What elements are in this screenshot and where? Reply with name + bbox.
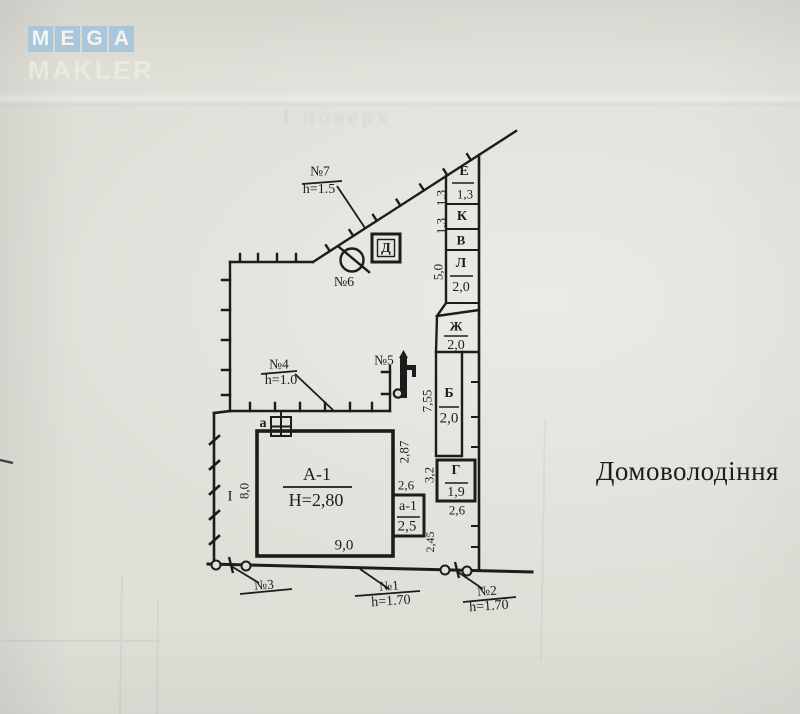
annex-width: 2,6 [398, 479, 414, 492]
dim-b-length: 7,55 [421, 390, 434, 413]
annex-label: а-1 [399, 500, 417, 514]
main-house-height: Н=2,80 [289, 491, 344, 509]
mark-n4-height: h=1.0 [265, 374, 297, 388]
annex-dim: 2,5 [398, 520, 417, 535]
mark-n6-label: №6 [334, 276, 354, 290]
room-zh-dim: 2,0 [447, 339, 465, 353]
property-title: Домоволодіння [596, 456, 779, 487]
mark-n7-label: №7 [310, 164, 330, 178]
room-v-label: В [457, 234, 466, 247]
room-l-label: Л [456, 257, 466, 271]
dim-e-k: 1,3 [435, 190, 448, 206]
room-k-label: К [457, 210, 467, 224]
room-b-label: Б [444, 387, 453, 401]
dim-house-left: 8,0 [238, 483, 251, 499]
room-g-width: 2,6 [449, 504, 465, 517]
dim-house-right: 2,87 [398, 441, 411, 464]
mark-n2-label: №2 [477, 584, 498, 599]
section-label: I [228, 490, 233, 505]
mark-n1-label: №1 [379, 579, 400, 594]
mark-n1-height: h=1.70 [371, 594, 411, 611]
dim-k-v: 1,3 [435, 218, 448, 234]
mark-n3-label: №3 [254, 578, 275, 593]
dim-l-length: 5,0 [432, 264, 445, 280]
room-zh-label: Ж [450, 320, 463, 333]
edge-stray-mark [0, 460, 13, 463]
scanned-plan-page: M E G A MAKLER І поверх [0, 0, 800, 714]
room-b-dim: 2,0 [440, 412, 459, 427]
water-pump-symbol [394, 350, 416, 398]
dim-g-side: 3,2 [423, 467, 436, 483]
room-g-label: Г [452, 464, 461, 478]
mark-n5-label: №5 [374, 353, 394, 367]
chimney-label: а [260, 417, 267, 431]
room-d-label: Д [381, 242, 391, 256]
room-e-dim: 1,3 [457, 188, 473, 201]
main-house-width: 9,0 [335, 539, 354, 554]
dim-annex-side: 2,45 [424, 532, 436, 553]
main-house-label: А-1 [303, 465, 331, 483]
well-symbol [339, 247, 369, 272]
mark-n2-height: h=1.70 [469, 599, 509, 616]
mark-n4-label: №4 [269, 357, 289, 371]
room-e-label: Е [459, 165, 468, 179]
mark-n7-height: h=1.5 [303, 183, 335, 197]
room-g-dim: 1,9 [447, 486, 465, 500]
room-l-dim: 2,0 [452, 281, 470, 295]
